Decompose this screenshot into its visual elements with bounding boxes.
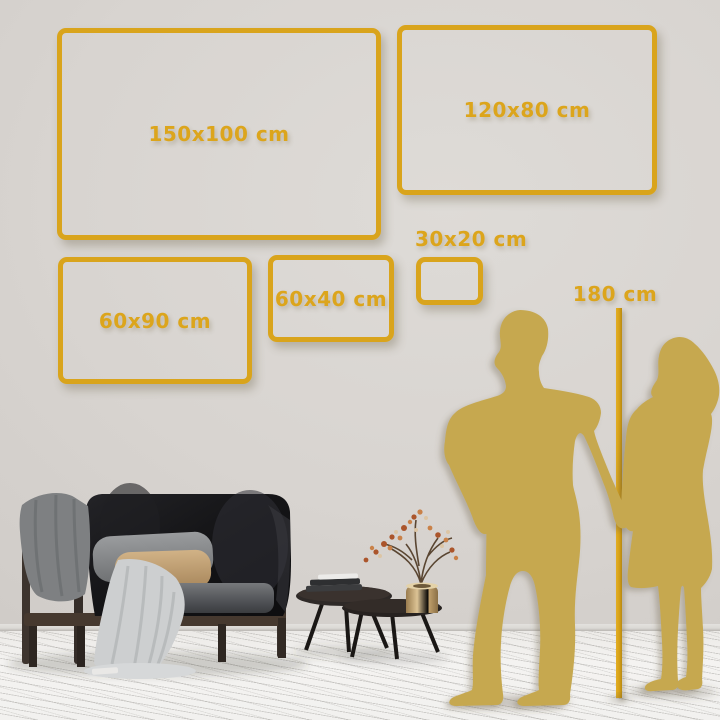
frame-60x90: 60x90 cm: [58, 257, 252, 384]
frame-size-label: 60x40 cm: [275, 287, 387, 311]
height-measure-line: [616, 308, 622, 698]
frame-size-label: 60x90 cm: [99, 309, 211, 333]
frame-60x40: 60x40 cm: [268, 255, 394, 342]
frame-30x20: [416, 257, 483, 305]
height-marker-label: 180 cm: [567, 282, 663, 306]
frame-120x80: 120x80 cm: [397, 25, 657, 195]
frame-150x100: 150x100 cm: [57, 28, 381, 240]
wood-floor: [0, 631, 720, 720]
frame-size-label: 120x80 cm: [464, 98, 591, 122]
frame-size-label-30x20: 30x20 cm: [415, 227, 527, 251]
frame-size-label: 150x100 cm: [148, 122, 289, 146]
size-guide-poster: 150x100 cm 120x80 cm 60x90 cm 60x40 cm 3…: [0, 0, 720, 720]
